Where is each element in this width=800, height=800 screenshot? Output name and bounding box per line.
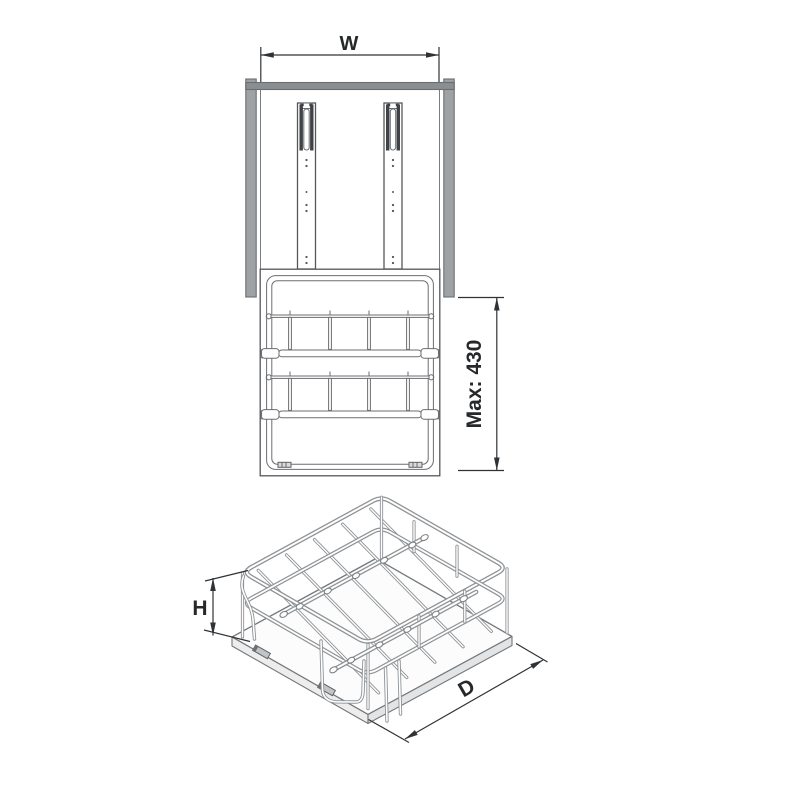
arrowhead-down-icon [210, 623, 216, 636]
arrowhead-upper-icon [530, 660, 543, 669]
arrowhead-up-icon [494, 298, 500, 311]
rack-bar [279, 411, 422, 418]
drawing-canvas: W [0, 0, 800, 800]
height-dimension-label: H [192, 597, 207, 620]
slide-bracket-prong [310, 105, 313, 151]
isometric-view: H D [192, 497, 547, 742]
wire-basket-front [260, 269, 440, 476]
arrowhead-lower-icon [405, 730, 418, 739]
rack-bar [279, 350, 422, 357]
dimension-max-height: Max: 430 [458, 298, 504, 471]
slide-bracket-prong [300, 105, 303, 151]
cabinet-right-panel [444, 79, 454, 297]
max-height-dimension-label: Max: 430 [463, 340, 486, 429]
arrowhead-down-icon [494, 458, 500, 471]
rack-bar-end-cap [262, 349, 280, 359]
technical-drawing-page: W [0, 0, 800, 800]
cabinet [246, 79, 454, 297]
slide-bracket-pin [304, 109, 309, 150]
arrowhead-right-icon [426, 52, 439, 58]
extension-line-upper [516, 644, 548, 663]
slide-bracket-prong [397, 105, 400, 151]
front-view: W [246, 33, 504, 476]
rack-bar-end-cap [421, 349, 439, 359]
drawer-slide-left [298, 103, 316, 269]
arrowhead-left-icon [261, 52, 274, 58]
drawer-slide-right [384, 103, 402, 269]
slide-bracket-pin [390, 109, 395, 150]
rack-bar-end-cap [262, 410, 280, 420]
cabinet-top-rail [246, 83, 454, 90]
slide-bracket-prong [386, 105, 389, 151]
depth-dimension-label: D [454, 675, 479, 703]
cabinet-left-panel [246, 79, 256, 297]
width-dimension-label: W [340, 33, 359, 55]
dimension-width: W [261, 33, 439, 82]
extension-line-lower [369, 720, 410, 743]
rack-bar-end-cap [421, 410, 439, 420]
